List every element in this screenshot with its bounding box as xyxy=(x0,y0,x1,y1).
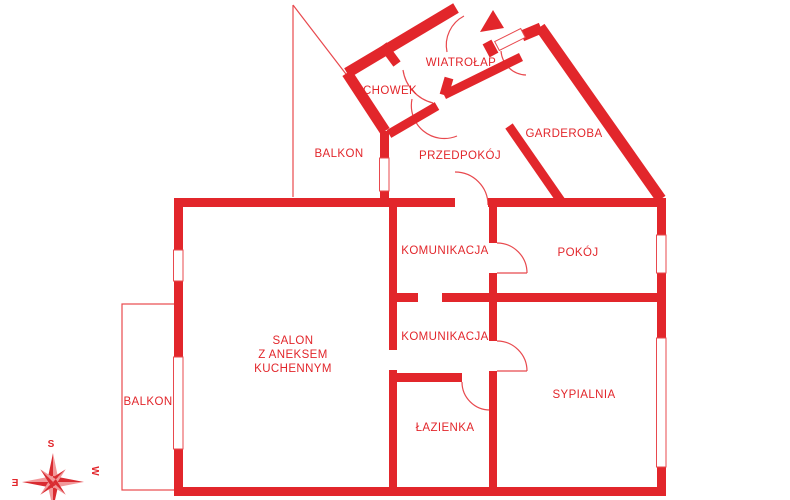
door-arc-lazienka xyxy=(462,382,490,410)
room-label-balkon-top: BALKON xyxy=(314,148,363,160)
room-label-schowek: SCHOWEK xyxy=(355,85,417,97)
compass-letter-west: W xyxy=(89,466,100,476)
window-entrance-sidelight xyxy=(495,29,526,51)
compass-letter-east: E xyxy=(11,478,18,489)
window-przedpokoj xyxy=(380,158,390,191)
room-label-sypialnia: SYPIALNIA xyxy=(552,389,615,401)
room-label-pokoj: POKÓJ xyxy=(558,246,599,259)
room-label-komunikacja-lower: KOMUNIKACJA xyxy=(401,331,488,343)
window-pokoj xyxy=(657,235,667,273)
compass-star xyxy=(22,453,84,500)
entrance-arrow-icon xyxy=(480,10,504,32)
window-sypialnia xyxy=(657,338,667,467)
window-salon-upper xyxy=(174,250,184,281)
door-arc-pokoj xyxy=(497,243,527,273)
room-label-salon-line2: Z ANEKSEM xyxy=(258,349,327,361)
door-arc-sypialnia xyxy=(497,341,527,371)
room-label-przedpokoj: PRZEDPOKÓJ xyxy=(419,149,501,162)
compass-rose-icon: S E W xyxy=(11,439,100,500)
room-label-salon-line1: SALON xyxy=(273,335,314,347)
room-label-wiatrolap: WIATROŁAP xyxy=(426,57,496,69)
balcony-top-outline-diagonal xyxy=(293,5,349,78)
room-label-balkon-left: BALKON xyxy=(123,396,172,408)
room-label-garderoba: GARDEROBA xyxy=(525,128,602,140)
window-salon-lower xyxy=(174,357,184,449)
door-arc-entrance xyxy=(446,16,464,52)
floor-plan-svg: WIATROŁAP SCHOWEK BALKON PRZEDPOKÓJ GARD… xyxy=(0,0,790,500)
balconies-outline xyxy=(122,5,349,490)
compass-letter-south: S xyxy=(48,439,55,450)
walls-main xyxy=(174,131,666,496)
room-label-lazienka: ŁAZIENKA xyxy=(416,422,475,434)
room-label-komunikacja-upper: KOMUNIKACJA xyxy=(401,245,488,257)
door-arcs xyxy=(403,16,527,411)
room-label-salon-line3: KUCHENNYM xyxy=(254,363,332,375)
door-arc-przedpokoj-komunikacja xyxy=(455,172,488,205)
floor-plan-page: WIATROŁAP SCHOWEK BALKON PRZEDPOKÓJ GARD… xyxy=(0,0,790,500)
